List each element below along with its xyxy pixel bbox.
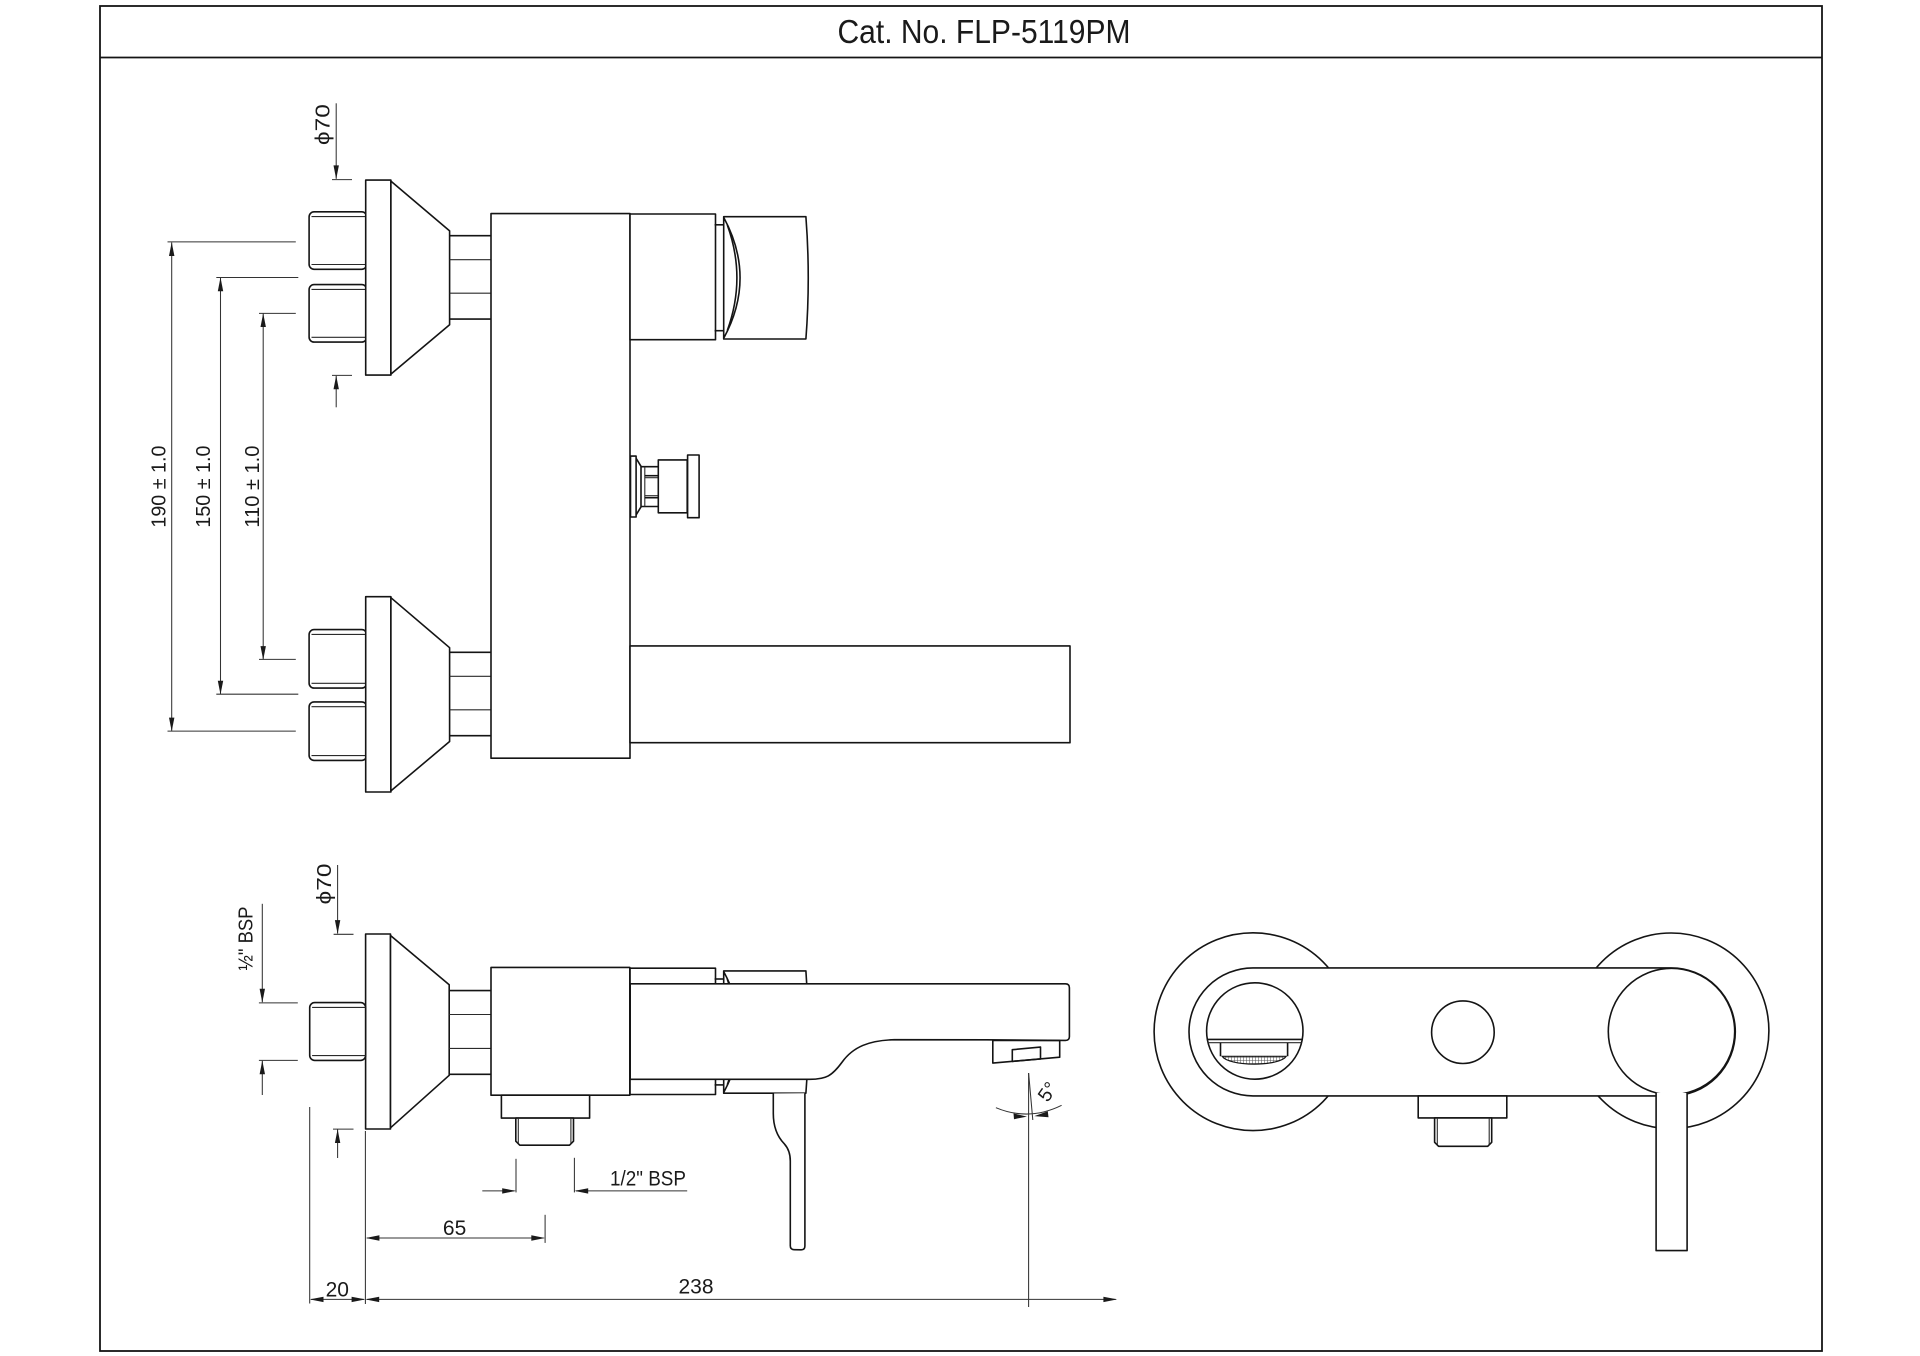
svg-text:Cat. No. FLP-5119PM: Cat. No. FLP-5119PM [838,13,1131,50]
svg-text:20: 20 [326,1278,349,1301]
svg-text:ϕ70: ϕ70 [312,104,335,145]
svg-text:1/2" BSP: 1/2" BSP [610,1167,686,1191]
svg-text:238: 238 [678,1275,713,1298]
svg-text:150 ± 1.0: 150 ± 1.0 [192,446,215,528]
svg-text:110 ± 1.0: 110 ± 1.0 [241,446,264,528]
svg-text:65: 65 [443,1217,466,1240]
svg-text:ϕ70: ϕ70 [313,864,336,905]
svg-text:190 ± 1.0: 190 ± 1.0 [148,446,171,528]
svg-text:½" BSP: ½" BSP [235,907,258,971]
